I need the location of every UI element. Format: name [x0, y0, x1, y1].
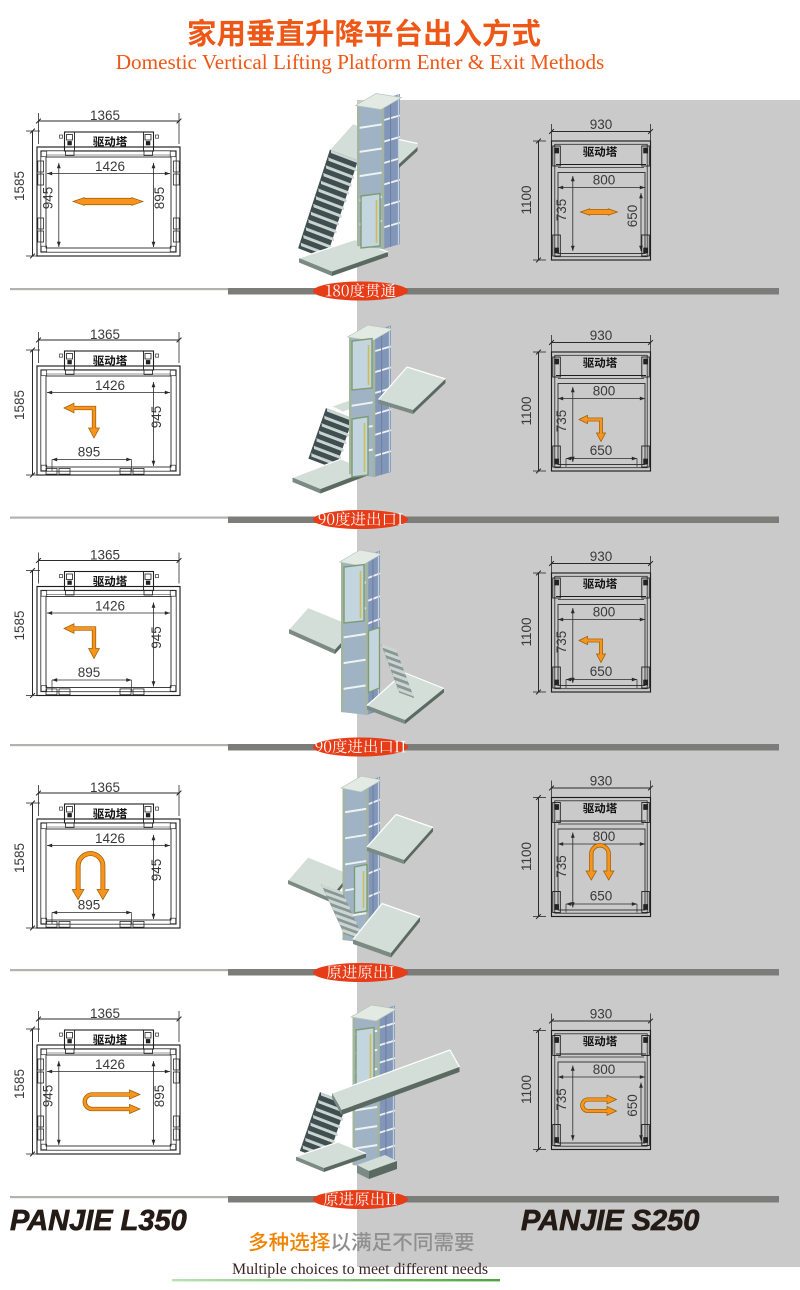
svg-text:930: 930 — [590, 774, 613, 789]
svg-text:735: 735 — [554, 855, 569, 878]
svg-text:PANJIE L350: PANJIE L350 — [10, 1205, 187, 1237]
svg-text:895: 895 — [78, 665, 101, 680]
svg-text:1426: 1426 — [95, 159, 125, 174]
svg-text:PANJIE S250: PANJIE S250 — [521, 1205, 699, 1237]
svg-text:1100: 1100 — [519, 617, 534, 646]
svg-text:650: 650 — [625, 1094, 640, 1117]
svg-text:930: 930 — [590, 549, 613, 564]
svg-text:945: 945 — [149, 406, 164, 429]
svg-text:1585: 1585 — [12, 171, 27, 201]
svg-text:1100: 1100 — [519, 185, 534, 214]
svg-text:1426: 1426 — [95, 378, 125, 393]
svg-text:895: 895 — [152, 1085, 167, 1108]
svg-text:930: 930 — [590, 1007, 613, 1022]
svg-text:650: 650 — [590, 889, 613, 904]
svg-text:1585: 1585 — [12, 1069, 27, 1099]
svg-text:1100: 1100 — [519, 1075, 534, 1104]
svg-text:1426: 1426 — [95, 831, 125, 846]
svg-text:800: 800 — [593, 1062, 616, 1077]
svg-text:1585: 1585 — [12, 610, 27, 640]
svg-text:945: 945 — [149, 626, 164, 649]
svg-text:800: 800 — [593, 605, 616, 620]
svg-text:735: 735 — [554, 631, 569, 654]
svg-text:650: 650 — [590, 443, 613, 458]
svg-text:1585: 1585 — [12, 843, 27, 873]
svg-text:1100: 1100 — [519, 842, 534, 871]
svg-text:945: 945 — [41, 1085, 56, 1108]
svg-text:650: 650 — [625, 205, 640, 228]
svg-text:Domestic Vertical Lifting Plat: Domestic Vertical Lifting Platform Enter… — [116, 50, 605, 74]
svg-text:895: 895 — [152, 187, 167, 210]
svg-text:1100: 1100 — [519, 396, 534, 425]
svg-text:1426: 1426 — [95, 599, 125, 614]
svg-text:1585: 1585 — [12, 390, 27, 420]
svg-text:800: 800 — [593, 829, 616, 844]
svg-text:735: 735 — [554, 410, 569, 433]
svg-text:945: 945 — [149, 859, 164, 882]
svg-text:945: 945 — [41, 187, 56, 210]
svg-text:800: 800 — [593, 384, 616, 399]
svg-text:895: 895 — [78, 898, 101, 913]
svg-text:Multiple choices to meet diffe: Multiple choices to meet different needs — [232, 1261, 488, 1278]
svg-text:735: 735 — [554, 199, 569, 222]
svg-text:930: 930 — [590, 328, 613, 343]
svg-text:1426: 1426 — [95, 1057, 125, 1072]
svg-text:735: 735 — [554, 1088, 569, 1111]
svg-text:895: 895 — [78, 445, 101, 460]
svg-text:930: 930 — [590, 117, 613, 132]
svg-text:650: 650 — [590, 664, 613, 679]
svg-text:800: 800 — [593, 173, 616, 188]
